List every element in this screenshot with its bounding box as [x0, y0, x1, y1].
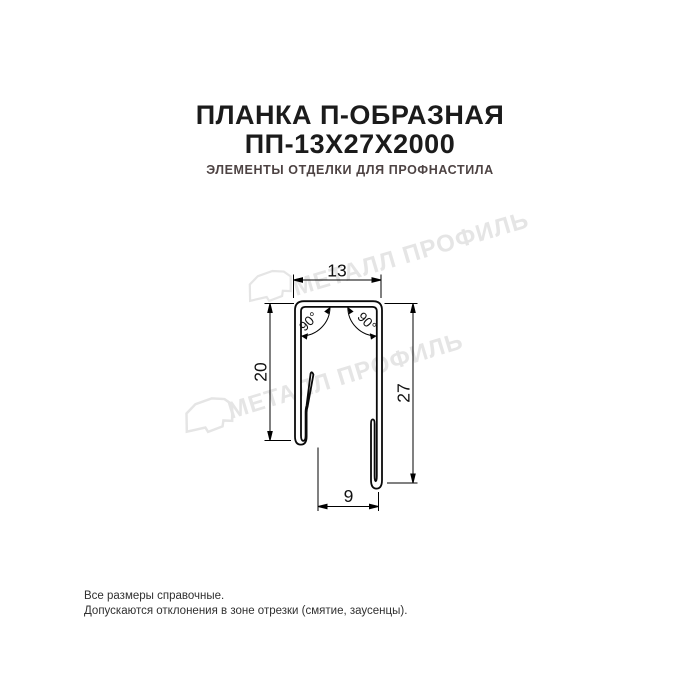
- note-line1: Все размеры справочные.: [84, 589, 407, 604]
- angle-label-right: 90°: [354, 309, 379, 334]
- brand-logo-icon: [246, 268, 295, 304]
- catalog-sheet: ПЛАНКА П-ОБРАЗНАЯ ПП-13Х27Х2000 ЭЛЕМЕНТЫ…: [0, 0, 700, 700]
- dim-label-bottom-width: 9: [344, 486, 354, 506]
- watermark-text-1: МЕТАЛЛ ПРОФИЛЬ: [290, 206, 532, 301]
- footer-notes: Все размеры справочные. Допускаются откл…: [84, 589, 407, 619]
- dim-label-top-width: 13: [327, 261, 346, 281]
- note-line2: Допускаются отклонения в зоне отрезки (с…: [84, 604, 407, 619]
- dim-label-left-height: 20: [251, 362, 271, 382]
- dim-label-right-height: 27: [394, 383, 414, 402]
